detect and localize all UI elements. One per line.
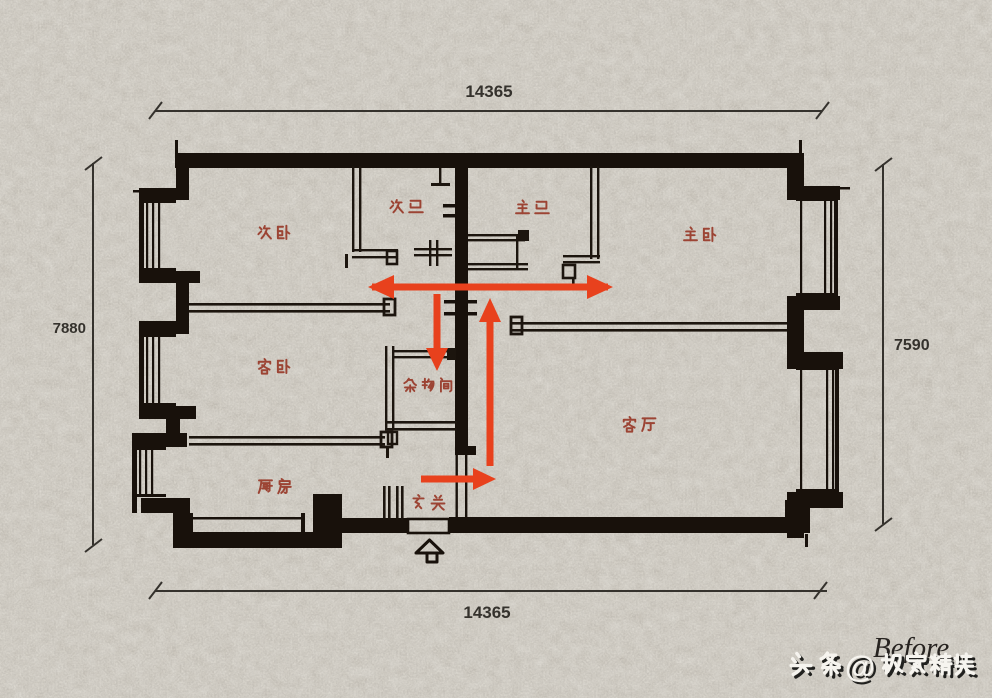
svg-text:@: @ [845, 649, 875, 684]
svg-text:14365: 14365 [465, 82, 512, 101]
svg-text:14365: 14365 [463, 603, 510, 622]
svg-text:7590: 7590 [894, 337, 930, 354]
svg-text:7880: 7880 [53, 320, 86, 337]
